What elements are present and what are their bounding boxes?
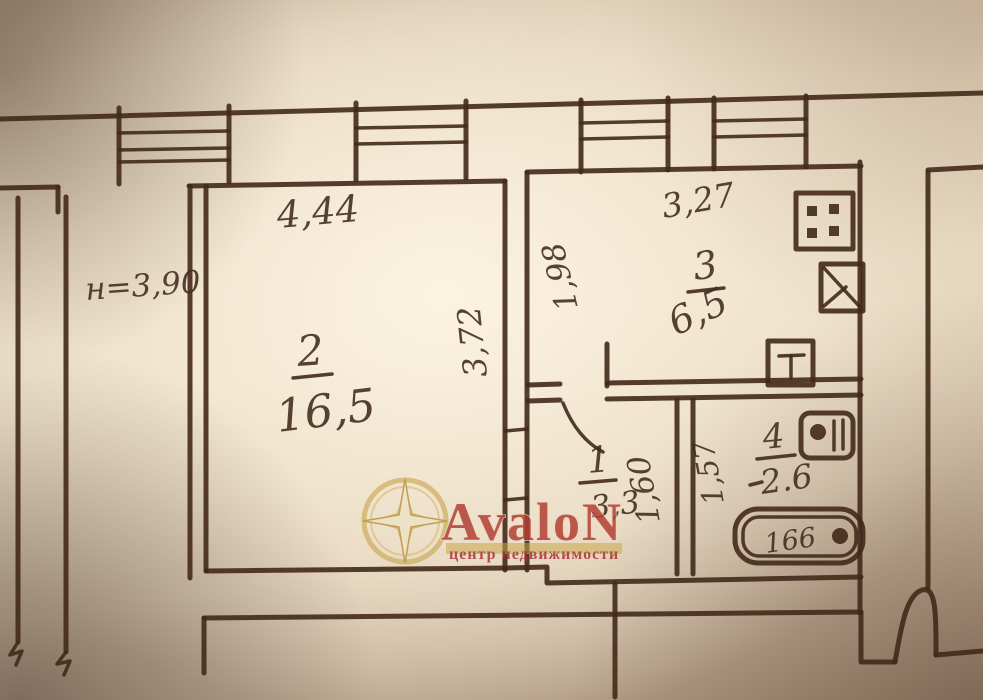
- room2-width-label: 4,44: [274, 187, 361, 237]
- kitchen-width-label: 3,27: [659, 175, 738, 226]
- toilet-icon: [801, 413, 853, 458]
- bath-area: 2.6: [757, 456, 815, 502]
- bath-number: 4: [760, 416, 787, 458]
- ceiling-height-label: н=3,90: [84, 264, 202, 308]
- agency-watermark: AvaloN центр недвижимости: [363, 479, 623, 563]
- floor-plan-drawing: 4,44 н=3,90 3,72 1,98 3,27 1,60 1,57 166…: [0, 0, 983, 700]
- walls: [0, 93, 983, 697]
- compass-rose-logo-icon: [363, 479, 447, 563]
- floor-plan-photo: 4,44 н=3,90 3,72 1,98 3,27 1,60 1,57 166…: [0, 0, 983, 700]
- room2-area: 16,5: [273, 378, 379, 443]
- stove-icon: [796, 193, 853, 249]
- watermark-brand: AvaloN: [441, 492, 623, 552]
- sink-icon: [821, 264, 863, 311]
- hall-number: 1: [585, 439, 611, 482]
- room2-number: 2: [294, 325, 325, 376]
- room2-depth-label: 3,72: [450, 304, 495, 379]
- watermark-tagline: центр недвижимости: [449, 546, 619, 563]
- kitchen-depth-label: 1,98: [535, 239, 586, 314]
